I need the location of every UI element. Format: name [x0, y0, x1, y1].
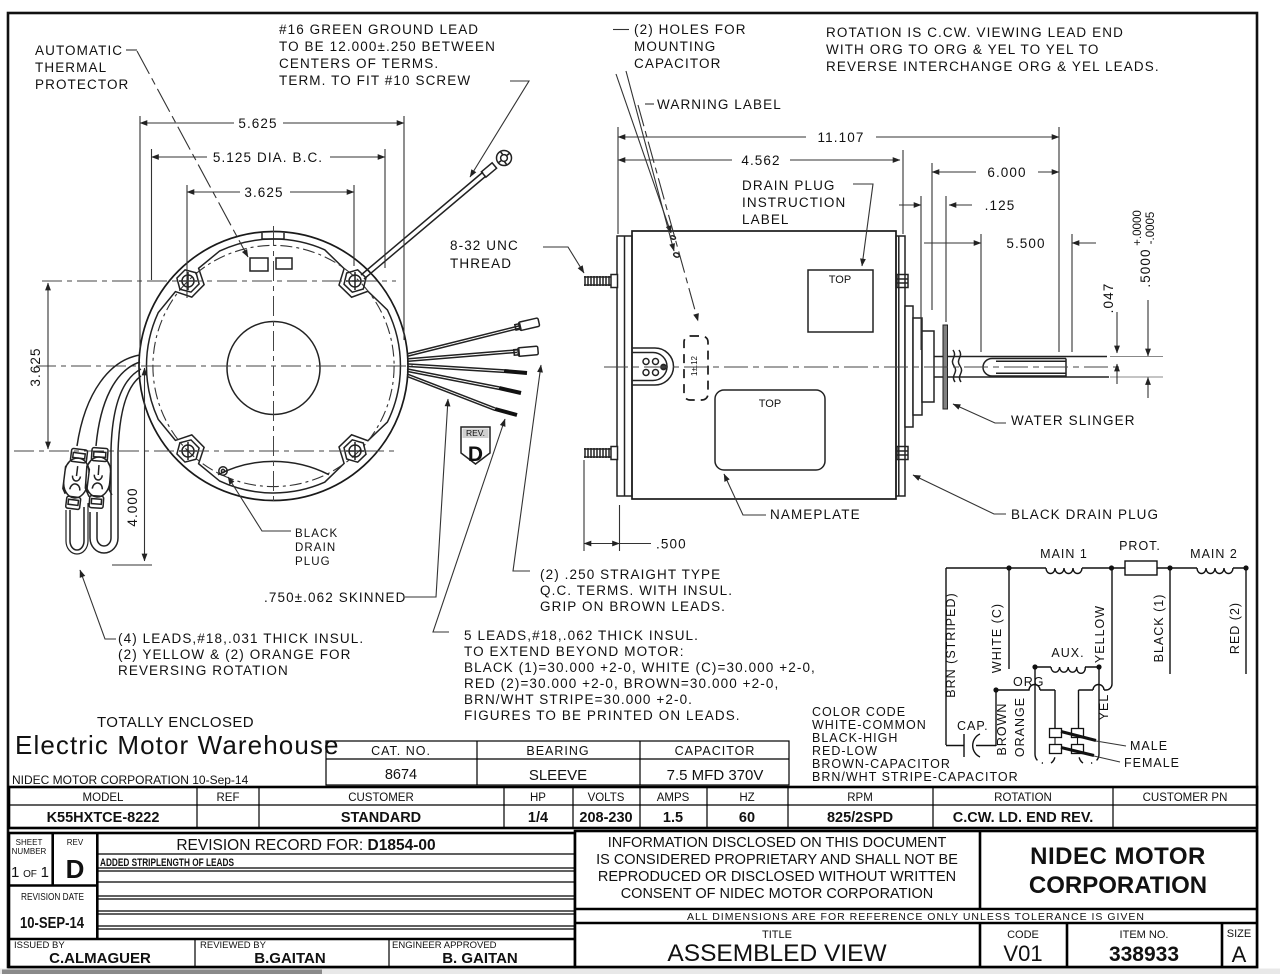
svg-text:208-230: 208-230 — [579, 810, 632, 826]
svg-text:WHITE-COMMON: WHITE-COMMON — [812, 718, 927, 732]
svg-text:ROTATION IS C.CW. VIEWING LEAD: ROTATION IS C.CW. VIEWING LEAD END — [826, 25, 1124, 40]
svg-text:SLEEVE: SLEEVE — [529, 767, 587, 784]
svg-text:6.000: 6.000 — [987, 165, 1026, 180]
svg-text:SIZE: SIZE — [1227, 928, 1251, 940]
svg-text:HZ: HZ — [739, 792, 754, 804]
svg-text:REV: REV — [67, 838, 84, 847]
svg-text:REPRODUCED OR DISCLOSED WITHOU: REPRODUCED OR DISCLOSED WITHOUT WRITTEN — [598, 869, 956, 885]
svg-text:DRAIN PLUG: DRAIN PLUG — [742, 178, 836, 193]
svg-text:REV.: REV. — [466, 428, 485, 438]
svg-text:REVISION RECORD FOR: D1854-00: REVISION RECORD FOR: D1854-00 — [176, 837, 435, 854]
svg-text:VOLTS: VOLTS — [588, 792, 625, 804]
svg-text:THREAD: THREAD — [450, 256, 512, 271]
svg-text:NIDEC MOTOR: NIDEC MOTOR — [1030, 843, 1206, 870]
svg-text:825/2SPD: 825/2SPD — [827, 810, 893, 826]
svg-text:(4) LEADS,#18,.031 THICK INSUL: (4) LEADS,#18,.031 THICK INSUL. — [118, 631, 364, 646]
svg-text:WATER SLINGER: WATER SLINGER — [1011, 413, 1136, 428]
svg-text:Q.C. TERMS. WITH INSUL.: Q.C. TERMS. WITH INSUL. — [540, 583, 733, 598]
svg-text:ALL DIMENSIONS ARE FOR REFEREN: ALL DIMENSIONS ARE FOR REFERENCE ONLY UN… — [687, 911, 1145, 923]
svg-text:.5000: .5000 — [1138, 248, 1153, 287]
svg-text:3.625: 3.625 — [244, 185, 283, 200]
svg-text:CENTERS OF TERMS.: CENTERS OF TERMS. — [279, 56, 439, 71]
svg-text:WARNING LABEL: WARNING LABEL — [657, 97, 782, 112]
svg-text:RED-LOW: RED-LOW — [812, 744, 878, 758]
svg-text:Electric Motor Warehouse: Electric Motor Warehouse — [15, 730, 340, 760]
svg-text:INSTRUCTION: INSTRUCTION — [742, 195, 846, 210]
svg-text:ROTATION: ROTATION — [994, 792, 1052, 804]
svg-text:BLACK (1): BLACK (1) — [1152, 594, 1166, 663]
svg-text:7.5 MFD 370V: 7.5 MFD 370V — [667, 767, 764, 784]
svg-text:DRAIN: DRAIN — [295, 542, 336, 554]
svg-text:HP: HP — [530, 792, 546, 804]
svg-text:1±.12: 1±.12 — [690, 355, 699, 376]
svg-text:.047: .047 — [1101, 283, 1116, 314]
svg-text:C.ALMAGUER: C.ALMAGUER — [49, 950, 151, 967]
svg-text:ITEM NO.: ITEM NO. — [1120, 929, 1169, 941]
svg-text:.125: .125 — [985, 198, 1016, 213]
svg-text:ADDED STRIPLENGTH OF LEADS: ADDED STRIPLENGTH OF LEADS — [100, 857, 234, 869]
svg-text:5.500: 5.500 — [1006, 236, 1045, 251]
svg-text:BROWN-CAPACITOR: BROWN-CAPACITOR — [812, 757, 951, 771]
svg-text:1.5: 1.5 — [663, 810, 683, 826]
svg-text:BLACK DRAIN PLUG: BLACK DRAIN PLUG — [1011, 507, 1159, 522]
svg-text:COLOR CODE: COLOR CODE — [812, 705, 906, 719]
svg-text:CAPACITOR: CAPACITOR — [634, 56, 721, 71]
svg-text:D: D — [66, 854, 85, 884]
svg-text:(2) YELLOW & (2) ORANGE FOR: (2) YELLOW & (2) ORANGE FOR — [118, 647, 352, 662]
svg-text:B. GAITAN: B. GAITAN — [442, 950, 518, 967]
svg-text:B.GAITAN: B.GAITAN — [254, 950, 325, 967]
svg-text:MAIN 1: MAIN 1 — [1040, 547, 1088, 561]
svg-text:(2) HOLES FOR: (2) HOLES FOR — [634, 22, 747, 37]
svg-text:AUTOMATIC: AUTOMATIC — [35, 43, 123, 58]
svg-text:C.CW. LD. END REV.: C.CW. LD. END REV. — [953, 810, 1093, 826]
svg-text:NAMEPLATE: NAMEPLATE — [770, 507, 861, 522]
svg-text:4.000: 4.000 — [125, 487, 140, 526]
svg-text:THERMAL: THERMAL — [35, 60, 107, 75]
svg-text:NUMBER: NUMBER — [12, 847, 47, 856]
svg-text:MODEL: MODEL — [83, 792, 125, 804]
svg-text:REF: REF — [217, 792, 240, 804]
svg-text:CORPORATION: CORPORATION — [1029, 872, 1207, 899]
svg-text:A: A — [1232, 942, 1247, 967]
svg-text:CUSTOMER: CUSTOMER — [348, 792, 414, 804]
svg-text:BROWN: BROWN — [995, 703, 1009, 756]
svg-text:REVERSE INTERCHANGE ORG & YEL: REVERSE INTERCHANGE ORG & YEL LEADS. — [826, 59, 1160, 74]
svg-text:YELLOW: YELLOW — [1093, 605, 1107, 663]
svg-text:MAIN 2: MAIN 2 — [1190, 547, 1238, 561]
svg-text:CAT. NO.: CAT. NO. — [371, 744, 431, 758]
svg-text:FIGURES TO BE PRINTED ON LEADS: FIGURES TO BE PRINTED ON LEADS. — [464, 708, 741, 723]
svg-text:PLUG: PLUG — [295, 556, 331, 568]
svg-text:CAPACITOR: CAPACITOR — [675, 744, 756, 758]
svg-text:GRIP ON BROWN LEADS.: GRIP ON BROWN LEADS. — [540, 599, 726, 614]
svg-text:.500: .500 — [656, 537, 687, 552]
svg-text:V01: V01 — [1003, 941, 1042, 966]
svg-text:FEMALE: FEMALE — [1124, 756, 1180, 770]
svg-text:1/4: 1/4 — [528, 810, 548, 826]
svg-text:BRN/WHT STRIPE=30.000 +2-0.: BRN/WHT STRIPE=30.000 +2-0. — [464, 692, 693, 707]
svg-text:5.125 DIA. B.C.: 5.125 DIA. B.C. — [213, 150, 323, 165]
svg-text:TERM. TO FIT #10 SCREW: TERM. TO FIT #10 SCREW — [279, 73, 471, 88]
svg-text:8674: 8674 — [385, 767, 417, 783]
svg-text:TO EXTEND BEYOND MOTOR:: TO EXTEND BEYOND MOTOR: — [464, 644, 685, 659]
svg-text:338933: 338933 — [1109, 943, 1179, 966]
svg-text:60: 60 — [739, 810, 755, 826]
svg-text:5 LEADS,#18,.062 THICK INSUL.: 5 LEADS,#18,.062 THICK INSUL. — [464, 628, 699, 643]
svg-text:4.562: 4.562 — [741, 153, 780, 168]
svg-text:+.0000: +.0000 — [1132, 210, 1144, 246]
svg-text:IS CONSIDERED PROPRIETARY AND: IS CONSIDERED PROPRIETARY AND SHALL NOT … — [596, 852, 958, 868]
svg-text:SHEET: SHEET — [16, 838, 43, 847]
svg-text:INFORMATION DISCLOSED ON THIS: INFORMATION DISCLOSED ON THIS DOCUMENT — [608, 835, 947, 851]
svg-text:TOP: TOP — [759, 398, 781, 410]
svg-text:8-32 UNC: 8-32 UNC — [450, 238, 519, 253]
svg-text:PROT.: PROT. — [1119, 539, 1161, 553]
svg-text:K55HXTCE-8222: K55HXTCE-8222 — [47, 810, 160, 826]
svg-text:TO BE 12.000±.250 BETWEEN: TO BE 12.000±.250 BETWEEN — [279, 39, 496, 54]
svg-text:STANDARD: STANDARD — [341, 810, 421, 826]
svg-text:REVISION DATE: REVISION DATE — [21, 891, 84, 903]
svg-text:TOTALLY ENCLOSED: TOTALLY ENCLOSED — [97, 714, 254, 731]
svg-text:11.107: 11.107 — [818, 130, 865, 145]
svg-text:RED (2): RED (2) — [1228, 602, 1242, 654]
svg-text:ASSEMBLED VIEW: ASSEMBLED VIEW — [667, 940, 887, 967]
svg-text:CAP.: CAP. — [957, 719, 989, 733]
svg-text:BLACK (1)=30.000 +2-0, WHITE (: BLACK (1)=30.000 +2-0, WHITE (C)=30.000 … — [464, 660, 816, 675]
svg-text:5.625: 5.625 — [238, 116, 277, 131]
svg-text:PROTECTOR: PROTECTOR — [35, 77, 129, 92]
svg-text:NIDEC MOTOR CORPORATION 10-Sep: NIDEC MOTOR CORPORATION 10-Sep-14 — [12, 773, 249, 787]
svg-text:AMPS: AMPS — [657, 792, 690, 804]
svg-text:REVERSING ROTATION: REVERSING ROTATION — [118, 663, 289, 678]
svg-text:-.0005: -.0005 — [1145, 212, 1157, 245]
svg-text:10-SEP-14: 10-SEP-14 — [20, 915, 84, 932]
svg-text:(2) .250 STRAIGHT TYPE: (2) .250 STRAIGHT TYPE — [540, 567, 721, 582]
svg-text:.750±.062 SKINNED: .750±.062 SKINNED — [264, 590, 406, 605]
svg-text:ORANGE: ORANGE — [1013, 697, 1027, 757]
svg-text:CUSTOMER PN: CUSTOMER PN — [1143, 792, 1228, 804]
svg-text:YEL: YEL — [1097, 694, 1111, 721]
svg-text:MOUNTING: MOUNTING — [634, 39, 716, 54]
svg-text:AUX.: AUX. — [1051, 646, 1084, 660]
svg-text:BLACK-HIGH: BLACK-HIGH — [812, 731, 898, 745]
svg-text:BEARING: BEARING — [526, 744, 589, 758]
svg-text:D: D — [468, 443, 483, 466]
svg-text:BLACK: BLACK — [295, 528, 338, 540]
svg-text:BRN (STRIPED): BRN (STRIPED) — [944, 592, 958, 697]
svg-text:MALE: MALE — [1130, 739, 1168, 753]
svg-text:RED (2)=30.000 +2-0, BROWN=30.: RED (2)=30.000 +2-0, BROWN=30.000 +2-0, — [464, 676, 779, 691]
svg-text:CODE: CODE — [1007, 929, 1039, 941]
svg-text:#16 GREEN GROUND LEAD: #16 GREEN GROUND LEAD — [279, 22, 479, 37]
svg-text:LABEL: LABEL — [742, 212, 790, 227]
svg-text:RPM: RPM — [847, 792, 873, 804]
svg-text:CONSENT OF NIDEC MOTOR CORPORA: CONSENT OF NIDEC MOTOR CORPORATION — [621, 886, 934, 902]
svg-text:TOP: TOP — [829, 274, 851, 286]
svg-text:3.625: 3.625 — [28, 347, 43, 386]
svg-text:BRN/WHT STRIPE-CAPACITOR: BRN/WHT STRIPE-CAPACITOR — [812, 770, 1019, 784]
svg-text:ORG: ORG — [1013, 675, 1044, 689]
svg-text:WHITE (C): WHITE (C) — [990, 603, 1004, 673]
svg-text:WITH ORG TO ORG & YEL TO YEL T: WITH ORG TO ORG & YEL TO YEL TO — [826, 42, 1099, 57]
